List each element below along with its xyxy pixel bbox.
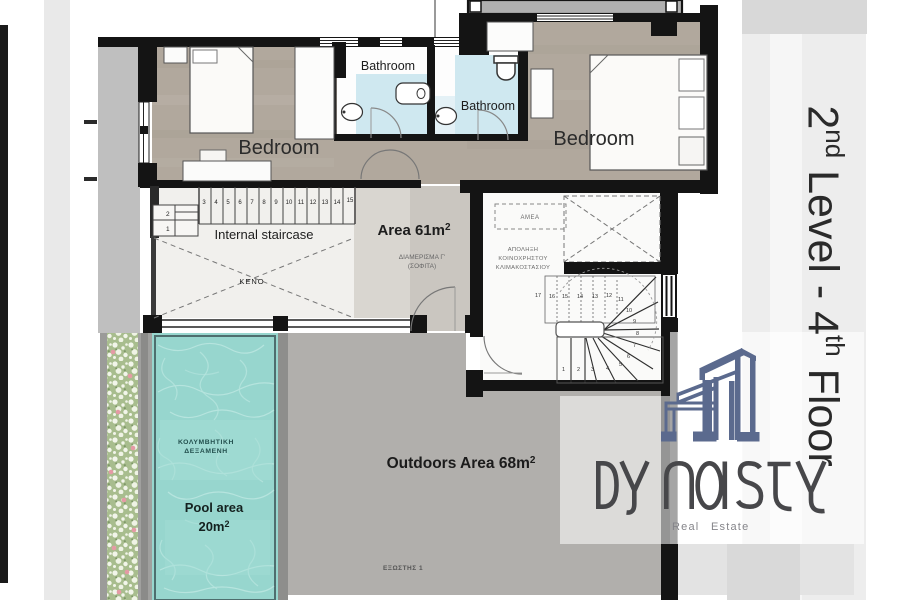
svg-text:10: 10	[626, 308, 632, 314]
svg-text:4: 4	[606, 366, 609, 372]
svg-text:ΚΟΙΝΟΧΡΗΣΤΟΥ: ΚΟΙΝΟΧΡΗΣΤΟΥ	[498, 256, 547, 262]
svg-text:ΚΕΝΟ: ΚΕΝΟ	[239, 277, 264, 286]
svg-text:Real: Real	[672, 521, 699, 533]
svg-text:ΚΛΙΜΑΚΟΣΤΑΣΙΟΥ: ΚΛΙΜΑΚΟΣΤΑΣΙΟΥ	[496, 265, 550, 271]
svg-text:ΔΕΞΑΜΕΝΗ: ΔΕΞΑΜΕΝΗ	[184, 448, 228, 455]
svg-text:3: 3	[591, 367, 594, 373]
svg-text:2: 2	[577, 367, 580, 373]
svg-text:Area 61m2: Area 61m2	[377, 222, 451, 239]
svg-text:11: 11	[298, 200, 305, 206]
svg-text:6: 6	[627, 354, 630, 360]
svg-text:Bedroom: Bedroom	[238, 137, 319, 159]
svg-text:ΚΟΛΥΜΒΗΤΙΚΗ: ΚΟΛΥΜΒΗΤΙΚΗ	[178, 439, 234, 446]
svg-text:8: 8	[636, 331, 639, 337]
svg-text:Bathroom: Bathroom	[361, 59, 415, 73]
svg-text:2: 2	[166, 211, 170, 218]
svg-text:17: 17	[535, 293, 541, 299]
svg-text:15: 15	[562, 294, 568, 300]
svg-text:12: 12	[606, 293, 612, 299]
svg-text:ΔΙΑΜΕΡΙΣΜΑ Γ': ΔΙΑΜΕΡΙΣΜΑ Γ'	[399, 254, 445, 261]
svg-text:Estate: Estate	[711, 521, 749, 533]
svg-text:10: 10	[286, 200, 293, 206]
svg-text:11: 11	[618, 297, 624, 303]
svg-text:Internal staircase: Internal staircase	[215, 227, 314, 242]
svg-text:(ΣΟΦΙΤΑ): (ΣΟΦΙΤΑ)	[408, 263, 436, 270]
svg-text:Outdoors Area 68m2: Outdoors Area 68m2	[387, 455, 536, 472]
svg-text:13: 13	[592, 294, 598, 300]
svg-text:5: 5	[619, 362, 622, 368]
svg-text:ΕΞΩΣΤΗΣ 1: ΕΞΩΣΤΗΣ 1	[383, 565, 423, 572]
svg-text:ΑΠΟΛΗΞΗ: ΑΠΟΛΗΞΗ	[508, 247, 539, 253]
svg-text:Pool area: Pool area	[185, 500, 244, 515]
svg-text:13: 13	[322, 200, 329, 206]
svg-text:1: 1	[562, 367, 565, 373]
svg-text:Bathroom: Bathroom	[461, 99, 515, 113]
svg-text:14: 14	[577, 294, 583, 300]
svg-text:2nd Level - 4th Floor: 2nd Level - 4th Floor	[799, 105, 850, 466]
svg-text:7: 7	[633, 343, 636, 349]
svg-text:Bedroom: Bedroom	[553, 128, 634, 150]
svg-text:14: 14	[334, 200, 341, 206]
svg-text:ΑΜΕΑ: ΑΜΕΑ	[520, 215, 539, 221]
svg-text:16: 16	[549, 294, 555, 300]
svg-text:9: 9	[633, 319, 636, 325]
svg-text:1: 1	[166, 226, 170, 233]
svg-text:12: 12	[310, 200, 317, 206]
svg-text:15: 15	[347, 198, 354, 204]
